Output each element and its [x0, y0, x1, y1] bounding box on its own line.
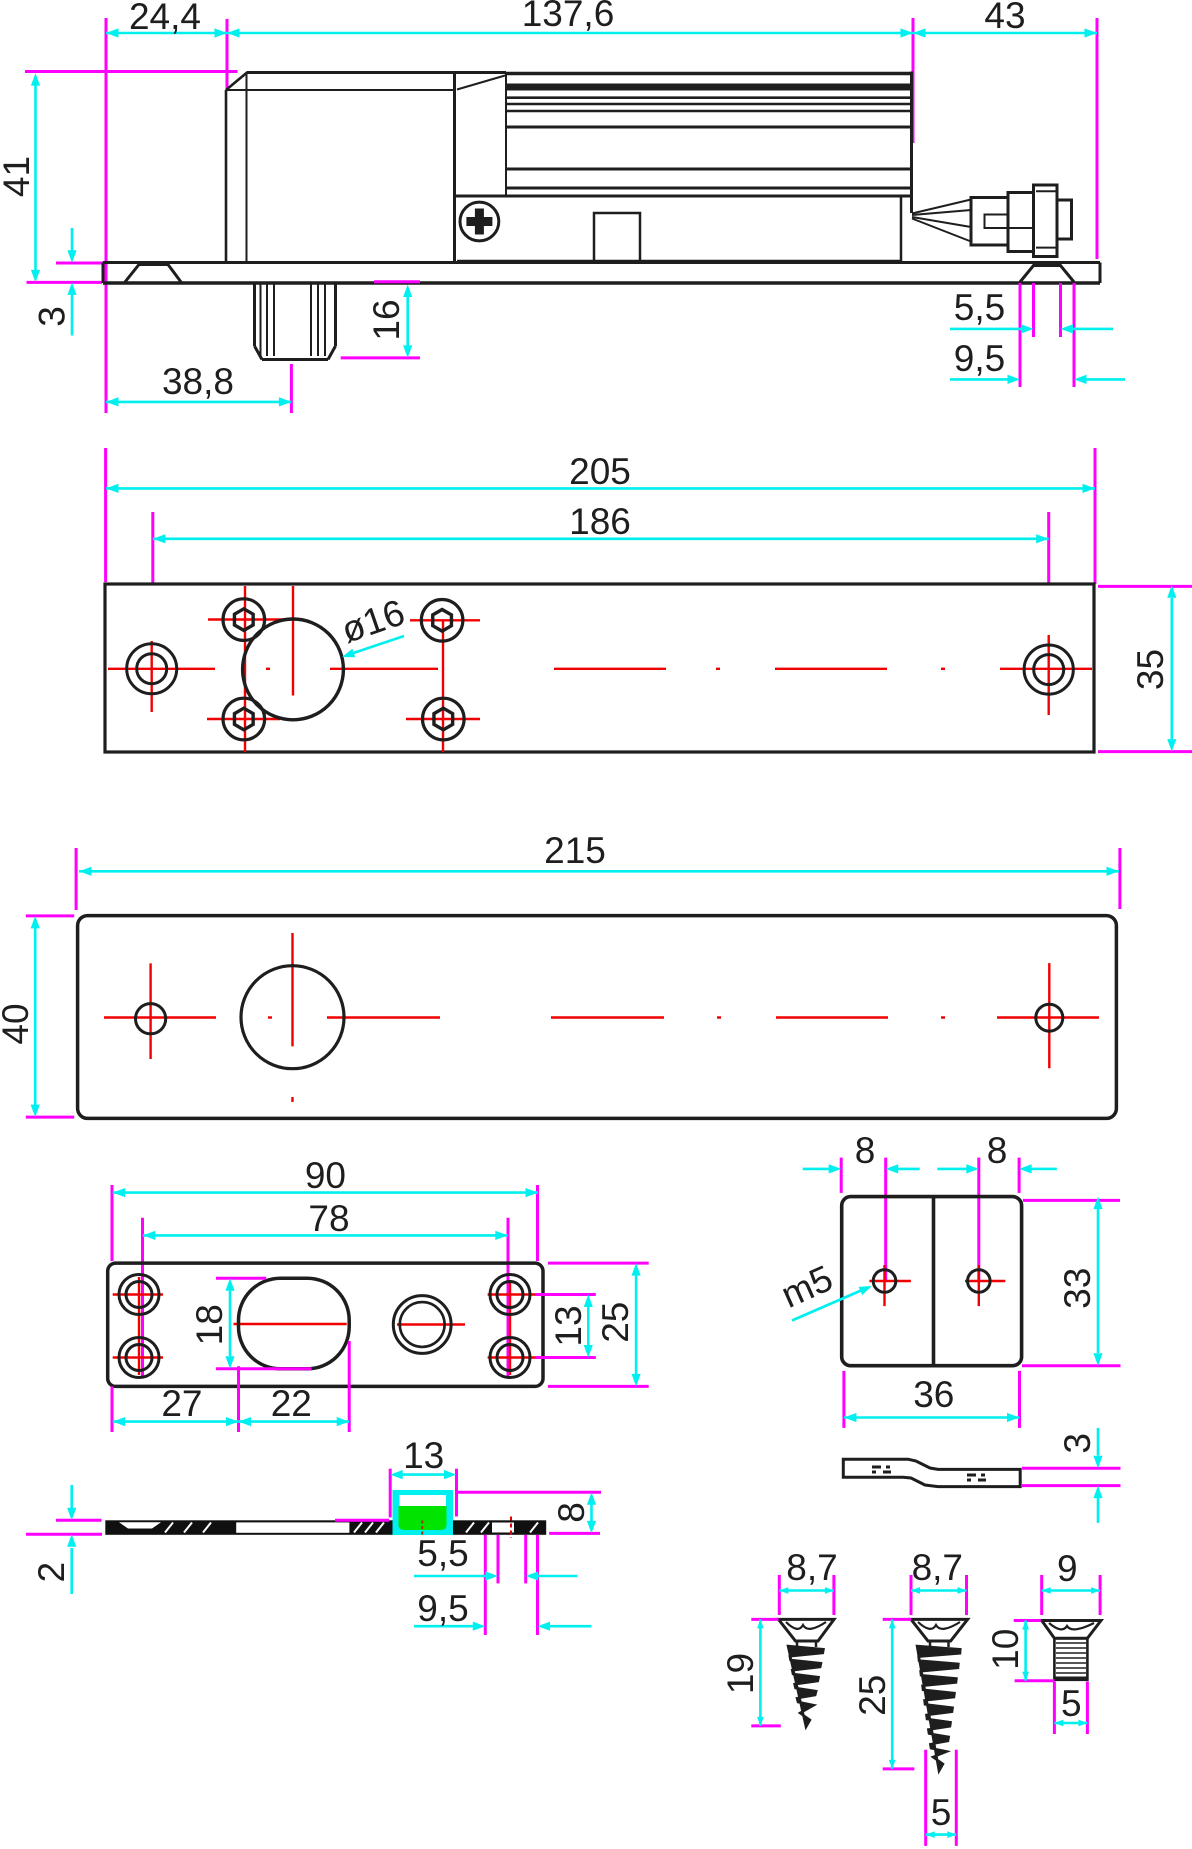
svg-text:5: 5	[1061, 1683, 1082, 1724]
svg-text:137,6: 137,6	[522, 0, 615, 34]
svg-text:40: 40	[0, 1003, 36, 1044]
svg-text:9,5: 9,5	[954, 338, 1005, 379]
svg-text:8: 8	[855, 1130, 876, 1171]
svg-text:22: 22	[271, 1383, 312, 1424]
svg-text:9: 9	[1057, 1548, 1078, 1589]
svg-text:10: 10	[985, 1629, 1026, 1670]
svg-text:5,5: 5,5	[954, 287, 1005, 328]
svg-text:16: 16	[366, 299, 407, 340]
svg-text:8,7: 8,7	[912, 1547, 963, 1588]
svg-text:36: 36	[913, 1374, 954, 1415]
svg-text:13: 13	[403, 1435, 444, 1476]
svg-text:24,4: 24,4	[129, 0, 201, 37]
svg-text:8,7: 8,7	[786, 1547, 837, 1588]
svg-text:33: 33	[1057, 1268, 1098, 1309]
svg-text:90: 90	[305, 1155, 346, 1196]
svg-text:2: 2	[31, 1562, 72, 1583]
svg-text:35: 35	[1130, 649, 1171, 690]
svg-text:43: 43	[984, 0, 1025, 36]
svg-text:13: 13	[548, 1305, 589, 1346]
svg-text:5: 5	[931, 1792, 952, 1833]
svg-text:215: 215	[544, 830, 606, 871]
svg-text:25: 25	[595, 1302, 636, 1343]
svg-text:8: 8	[551, 1502, 592, 1523]
svg-text:3: 3	[1057, 1433, 1098, 1454]
svg-text:ø16: ø16	[336, 591, 410, 651]
svg-text:m5: m5	[775, 1257, 839, 1315]
svg-text:78: 78	[308, 1198, 349, 1239]
svg-text:41: 41	[0, 156, 37, 197]
svg-text:186: 186	[569, 501, 631, 542]
svg-text:25: 25	[852, 1675, 893, 1716]
svg-text:18: 18	[189, 1304, 230, 1345]
svg-text:38,8: 38,8	[162, 361, 234, 402]
svg-text:9,5: 9,5	[417, 1588, 468, 1629]
svg-text:5,5: 5,5	[417, 1533, 468, 1574]
svg-text:205: 205	[569, 451, 631, 492]
svg-text:27: 27	[161, 1383, 202, 1424]
svg-text:3: 3	[32, 306, 73, 327]
svg-text:19: 19	[720, 1653, 761, 1694]
svg-text:8: 8	[987, 1130, 1008, 1171]
